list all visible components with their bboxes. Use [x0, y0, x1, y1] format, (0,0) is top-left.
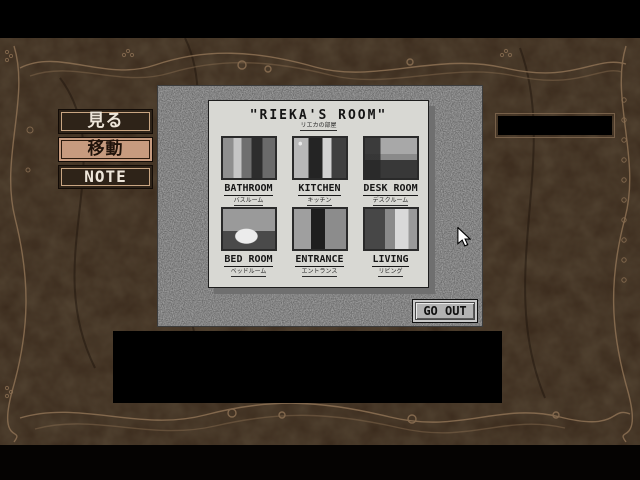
menu-button-look-label: 見る [88, 113, 124, 130]
go-out-button-face: GO OUT [415, 302, 475, 320]
room-ruby: デスクルーム [373, 198, 409, 206]
room-ruby: エントランス [302, 269, 338, 277]
room-row-1: BATHROOM バスルーム KITCHEN キッチン DESK ROOM デス… [211, 136, 428, 206]
bedroom-thumbnail [221, 207, 277, 251]
game-screen: 見る 移動 NOTE "RIEKA'S ROOM" リエカの部屋 BATHROO… [0, 0, 640, 480]
room-cell-living[interactable]: LIVING リビング [359, 207, 423, 277]
room-card-title: "RIEKA'S ROOM" [209, 108, 428, 123]
room-cell-bedroom[interactable]: BED ROOM ベッドルーム [217, 207, 281, 277]
room-cell-entrance[interactable]: ENTRANCE エントランス [288, 207, 352, 277]
bottom-letterbox-band [0, 445, 640, 480]
room-ruby: バスルーム [234, 198, 264, 206]
room-cell-bathroom[interactable]: BATHROOM バスルーム [217, 136, 281, 206]
room-card-ruby: リエカの部屋 [209, 123, 428, 129]
deskroom-thumbnail [363, 136, 419, 180]
menu-button-move-label: 移動 [88, 141, 124, 158]
room-ruby: ベッドルーム [231, 269, 267, 277]
kitchen-thumbnail [292, 136, 348, 180]
room-cell-deskroom[interactable]: DESK ROOM デスクルーム [359, 136, 423, 206]
top-letterbox-band [0, 0, 640, 38]
go-out-button[interactable]: GO OUT [412, 299, 478, 323]
room-label: LIVING [372, 254, 408, 267]
room-select-card: "RIEKA'S ROOM" リエカの部屋 BATHROOM バスルーム KIT… [208, 100, 429, 288]
status-text-box [498, 116, 612, 135]
living-thumbnail [363, 207, 419, 251]
menu-button-note[interactable]: NOTE [58, 165, 153, 189]
room-label: BED ROOM [224, 254, 272, 267]
message-text-box [113, 331, 502, 403]
room-label: BATHROOM [224, 183, 272, 196]
menu-button-note-label: NOTE [84, 169, 127, 185]
entrance-thumbnail [292, 207, 348, 251]
menu-button-look[interactable]: 見る [58, 109, 153, 134]
room-label: ENTRANCE [295, 254, 343, 267]
map-panel: "RIEKA'S ROOM" リエカの部屋 BATHROOM バスルーム KIT… [157, 85, 483, 327]
room-ruby: キッチン [307, 198, 331, 206]
room-label: KITCHEN [298, 183, 340, 196]
room-row-2: BED ROOM ベッドルーム ENTRANCE エントランス LIVING リ… [211, 207, 428, 277]
room-ruby: リビング [378, 269, 402, 277]
menu-button-move[interactable]: 移動 [58, 137, 153, 162]
room-cell-kitchen[interactable]: KITCHEN キッチン [288, 136, 352, 206]
bathroom-thumbnail [221, 136, 277, 180]
room-label: DESK ROOM [363, 183, 417, 196]
